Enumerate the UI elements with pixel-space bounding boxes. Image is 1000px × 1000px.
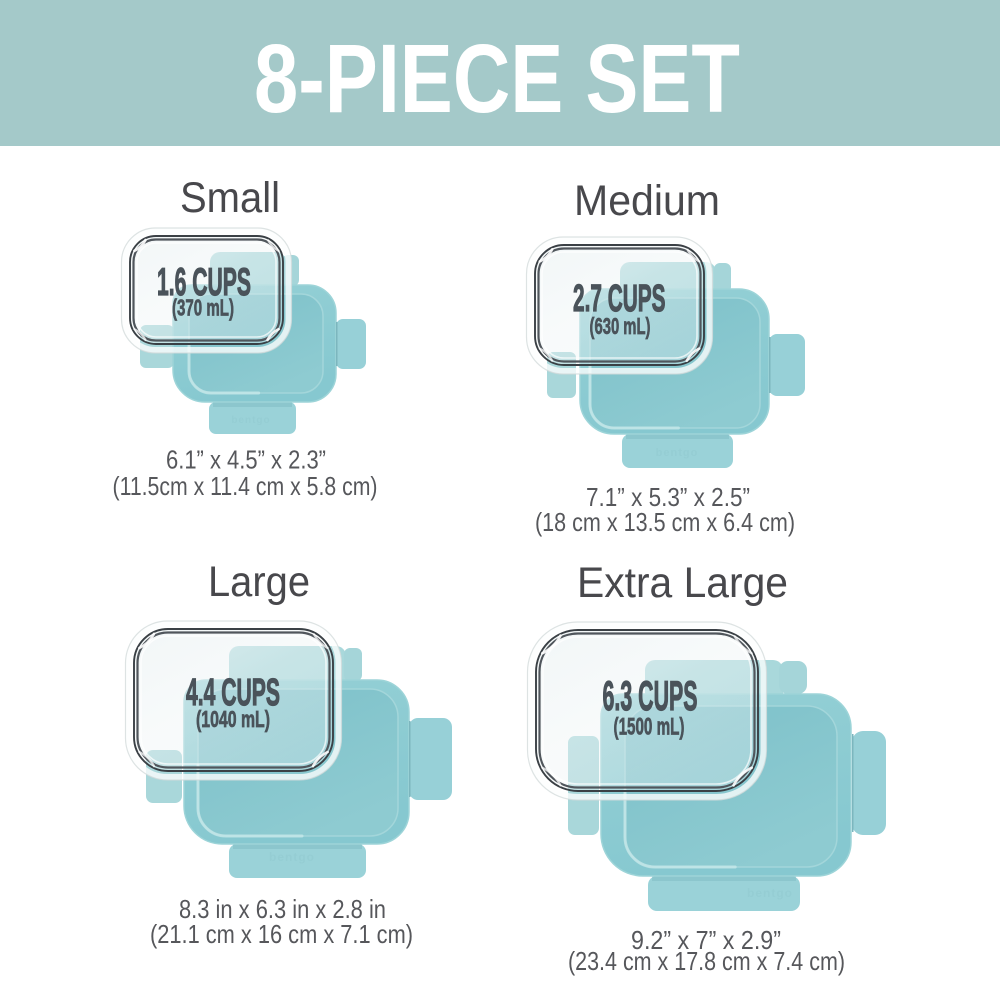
svg-text:(21.1 cm x 16 cm x 7.1 cm): (21.1 cm x 16 cm x 7.1 cm)	[150, 919, 413, 949]
svg-text:Small: Small	[180, 174, 280, 222]
svg-text:(18 cm x 13.5 cm x 6.4 cm): (18 cm x 13.5 cm x 6.4 cm)	[535, 507, 795, 537]
svg-text:6.3 CUPS: 6.3 CUPS	[603, 672, 698, 719]
svg-text:bentgo: bentgo	[656, 447, 699, 459]
svg-text:8-PIECE SET: 8-PIECE SET	[254, 24, 740, 133]
svg-text:(370 mL): (370 mL)	[172, 295, 234, 321]
svg-text:bentgo: bentgo	[747, 886, 793, 900]
svg-text:(1500 mL): (1500 mL)	[614, 714, 685, 740]
svg-text:bentgo: bentgo	[231, 415, 270, 426]
svg-text:Extra Large: Extra Large	[577, 559, 788, 607]
svg-text:(630 mL): (630 mL)	[590, 313, 651, 339]
svg-text:(11.5cm x 11.4 cm x 5.8 cm): (11.5cm x 11.4 cm x 5.8 cm)	[113, 471, 378, 501]
svg-text:6.1” x 4.5” x 2.3”: 6.1” x 4.5” x 2.3”	[166, 445, 326, 475]
svg-text:(1040 mL): (1040 mL)	[196, 706, 270, 732]
svg-text:(23.4 cm x 17.8 cm x 7.4 cm): (23.4 cm x 17.8 cm x 7.4 cm)	[568, 946, 845, 976]
svg-text:Large: Large	[208, 558, 310, 606]
svg-text:Medium: Medium	[574, 177, 720, 225]
svg-text:bentgo: bentgo	[269, 850, 315, 864]
